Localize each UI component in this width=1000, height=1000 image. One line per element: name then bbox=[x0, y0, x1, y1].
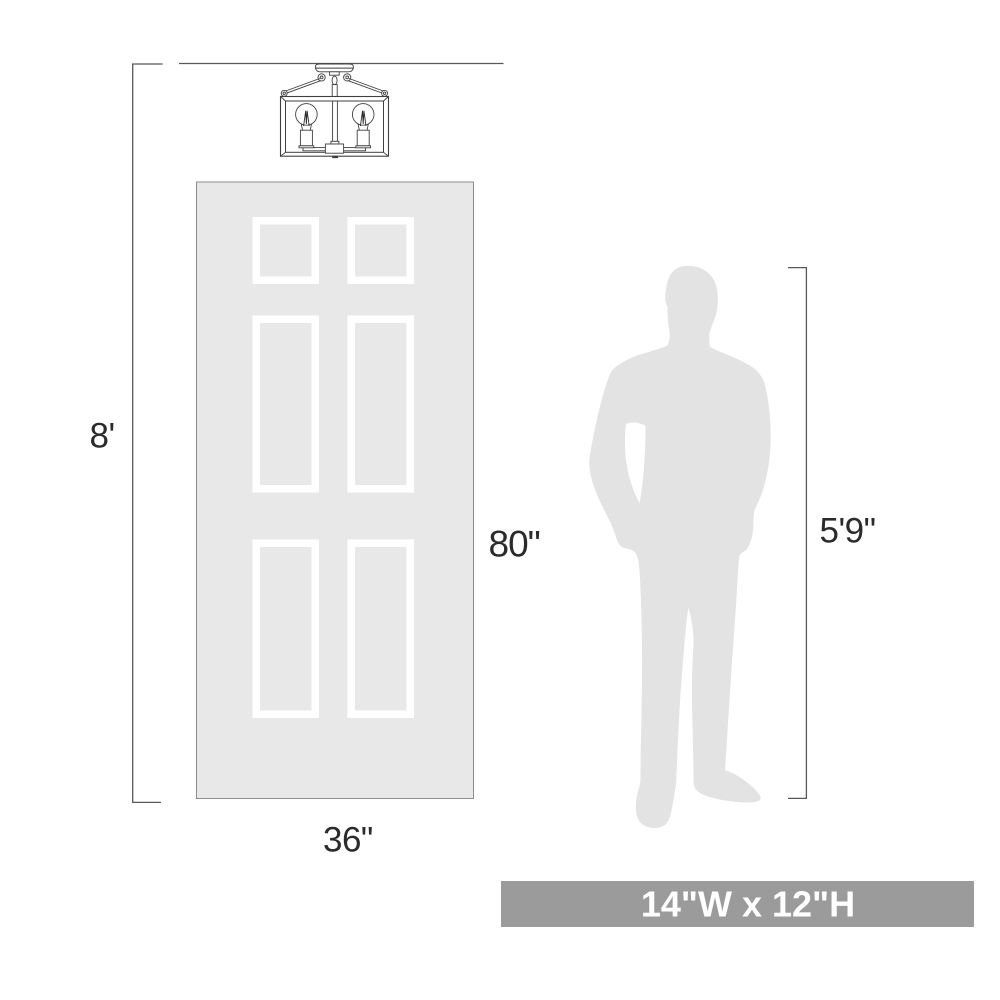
svg-text:8': 8' bbox=[90, 417, 115, 456]
svg-text:14"W x 12"H: 14"W x 12"H bbox=[641, 884, 855, 925]
svg-text:5'9": 5'9" bbox=[820, 512, 876, 551]
svg-text:36": 36" bbox=[323, 821, 373, 860]
svg-text:80": 80" bbox=[489, 524, 540, 565]
